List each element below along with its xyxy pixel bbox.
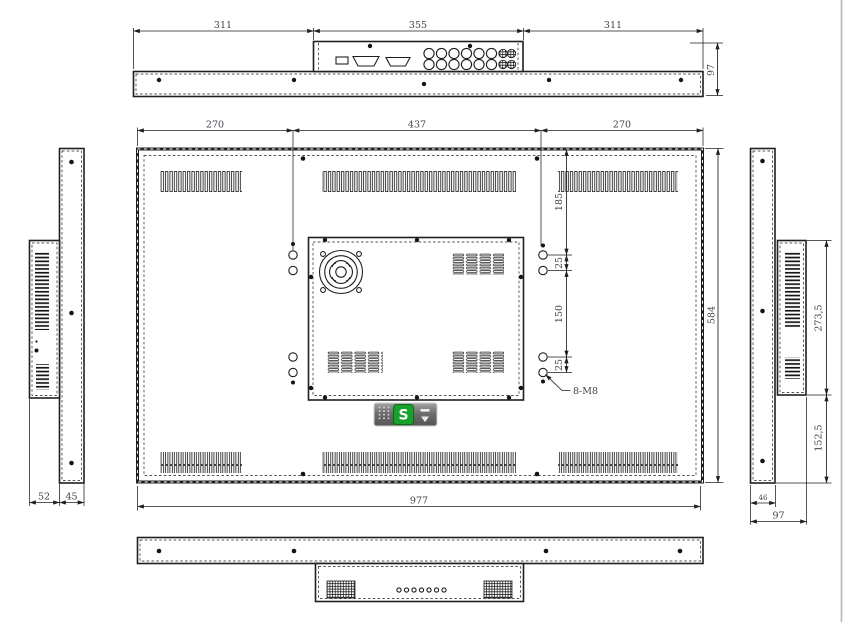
dim-rear-top-right: 270	[613, 120, 631, 131]
dim-right-upper-height: 273,5	[814, 304, 825, 331]
dsub-connector-icon	[353, 57, 379, 67]
s-logo-letter: S	[398, 408, 408, 424]
electronics-panel	[309, 238, 524, 401]
panel-vent-bottom-right	[452, 351, 504, 373]
left-view-hole	[35, 349, 39, 353]
bottom-view	[138, 538, 704, 602]
dim-vesa-top-offset: 185	[554, 193, 565, 211]
drawing-stage: 311 355 311 97	[0, 0, 844, 622]
right-side-view: 273,5 152,5 46 97	[751, 149, 832, 525]
right-view-vent-upper	[785, 251, 800, 328]
power-inlet-icon	[336, 57, 348, 64]
dim-rear-top-center: 437	[408, 120, 426, 131]
dim-left-body-depth: 45	[65, 492, 77, 503]
vent-strip-bottom-center	[322, 452, 516, 473]
vent-strip-top-center	[322, 171, 516, 192]
dim-right-body-depth: 46	[759, 494, 768, 502]
left-view-vent-upper	[35, 252, 49, 330]
right-view-body	[751, 149, 776, 484]
technical-drawing-canvas: 311 355 311 97	[0, 0, 844, 622]
left-side-view: 52 45	[30, 149, 85, 507]
dim-right-total-depth: 97	[772, 511, 784, 522]
left-view-pinhole	[35, 340, 37, 342]
top-view-body	[134, 72, 704, 97]
dim-top-left: 311	[214, 20, 232, 31]
dim-vesa-pair-bottom: 25	[554, 359, 565, 371]
panel-vent-bottom-left	[327, 351, 383, 373]
left-view-body	[60, 149, 85, 484]
vent-strip-bottom-left	[160, 452, 242, 473]
top-view: 311 355 311 97	[134, 20, 724, 97]
speaker-grille-right	[484, 581, 512, 598]
dim-top-center: 355	[409, 20, 427, 31]
dim-top-depth: 97	[706, 64, 717, 76]
fan-icon	[320, 251, 363, 294]
watermark-toolbar[interactable]: S	[374, 403, 437, 426]
vent-strip-top-left	[160, 171, 242, 192]
dim-vesa-pair-top: 25	[554, 257, 565, 269]
bottom-view-body	[138, 538, 704, 564]
dim-vesa-span: 150	[554, 305, 565, 323]
vesa-thread-label: 8-M8	[573, 386, 598, 397]
left-view-vent-lower	[36, 364, 49, 390]
vent-strip-top-right	[558, 171, 678, 192]
vent-strip-bottom-right	[558, 452, 678, 473]
dim-left-protrusion-depth: 52	[38, 492, 50, 503]
dim-rear-height: 584	[707, 306, 718, 324]
dim-top-right: 311	[604, 20, 622, 31]
dim-rear-width: 977	[410, 496, 428, 507]
dsub-connector-icon	[386, 58, 410, 67]
panel-vent-top-right	[452, 253, 504, 275]
rear-view: 270 437 270 584 977 185 25 150 25 8-M8	[138, 120, 724, 511]
minimize-button[interactable]	[421, 409, 430, 412]
speaker-grille-left	[327, 581, 355, 598]
dim-right-lower-height: 152,5	[814, 424, 825, 451]
right-view-vent-lower	[785, 357, 800, 379]
dim-rear-top-left: 270	[206, 120, 224, 131]
s-logo-button[interactable]: S	[394, 405, 414, 425]
